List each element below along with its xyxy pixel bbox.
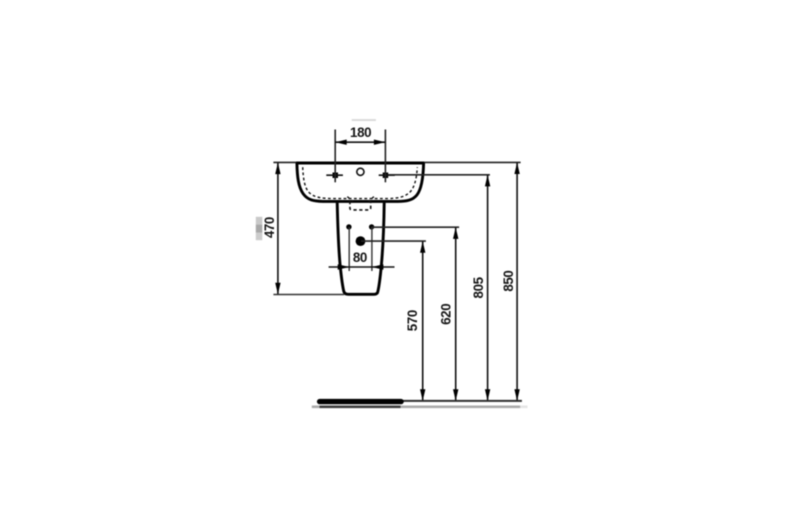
svg-text:850: 850 (501, 271, 516, 292)
svg-text:570: 570 (405, 310, 420, 331)
svg-text:470: 470 (262, 217, 277, 238)
svg-text:620: 620 (439, 304, 454, 325)
svg-text:805: 805 (471, 276, 486, 298)
svg-text:80: 80 (353, 250, 367, 265)
svg-text:180: 180 (350, 125, 371, 140)
